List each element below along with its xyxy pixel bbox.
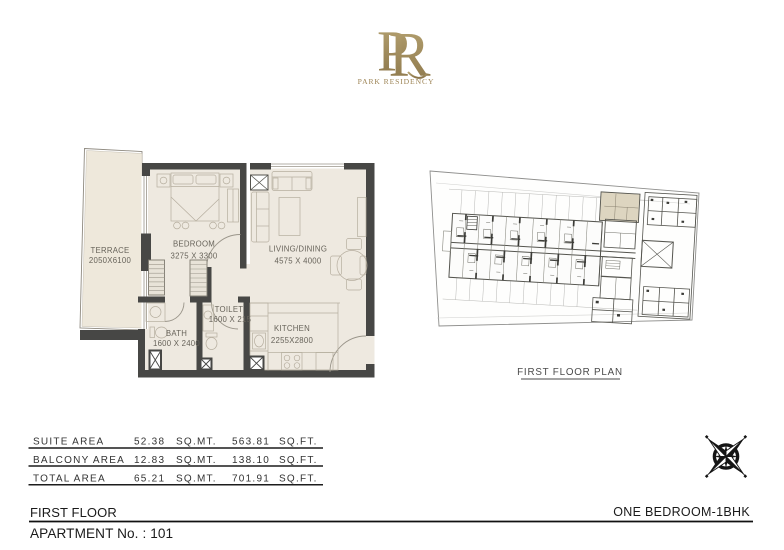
svg-text:2050X6100: 2050X6100: [89, 256, 132, 265]
svg-text:TERRACE: TERRACE: [90, 246, 129, 255]
svg-text:12.83: 12.83: [134, 455, 165, 466]
svg-text:BALCONY AREA: BALCONY AREA: [33, 455, 125, 466]
svg-text:PARK RESIDENCY: PARK RESIDENCY: [358, 77, 435, 86]
svg-text:SQ.FT.: SQ.FT.: [279, 455, 318, 466]
svg-text:TOTAL AREA: TOTAL AREA: [33, 474, 106, 485]
svg-text:ONE BEDROOM-1BHK: ONE BEDROOM-1BHK: [613, 505, 750, 519]
svg-text:SQ.MT.: SQ.MT.: [176, 474, 217, 485]
svg-text:65.21: 65.21: [134, 474, 165, 485]
svg-text:BATH: BATH: [166, 329, 187, 338]
svg-text:563.81: 563.81: [232, 437, 270, 448]
svg-text:KITCHEN: KITCHEN: [274, 324, 310, 333]
svg-text:FIRST FLOOR PLAN: FIRST FLOOR PLAN: [517, 367, 623, 378]
svg-text:2255X2800: 2255X2800: [271, 336, 314, 345]
svg-text:1600 X 215: 1600 X 215: [209, 315, 252, 324]
svg-text:TOILET: TOILET: [215, 305, 244, 314]
svg-text:138.10: 138.10: [232, 455, 270, 466]
svg-text:1600 X 2400: 1600 X 2400: [153, 339, 200, 348]
svg-text:FIRST FLOOR: FIRST FLOOR: [30, 505, 117, 520]
svg-text:SQ.MT.: SQ.MT.: [176, 455, 217, 466]
svg-text:SQ.FT.: SQ.FT.: [279, 437, 318, 448]
svg-text:BEDROOM: BEDROOM: [173, 240, 215, 249]
svg-text:4575 X 4000: 4575 X 4000: [275, 257, 322, 266]
svg-text:SQ.MT.: SQ.MT.: [176, 437, 217, 448]
svg-text:SUITE AREA: SUITE AREA: [33, 437, 104, 448]
svg-text:APARTMENT No. : 101: APARTMENT No. : 101: [30, 526, 173, 541]
svg-text:52.38: 52.38: [134, 437, 165, 448]
svg-text:3275 X 3300: 3275 X 3300: [171, 252, 218, 261]
svg-text:701.91: 701.91: [232, 474, 270, 485]
svg-text:SQ.FT.: SQ.FT.: [279, 474, 318, 485]
svg-text:LIVING/DINING: LIVING/DINING: [269, 245, 327, 254]
